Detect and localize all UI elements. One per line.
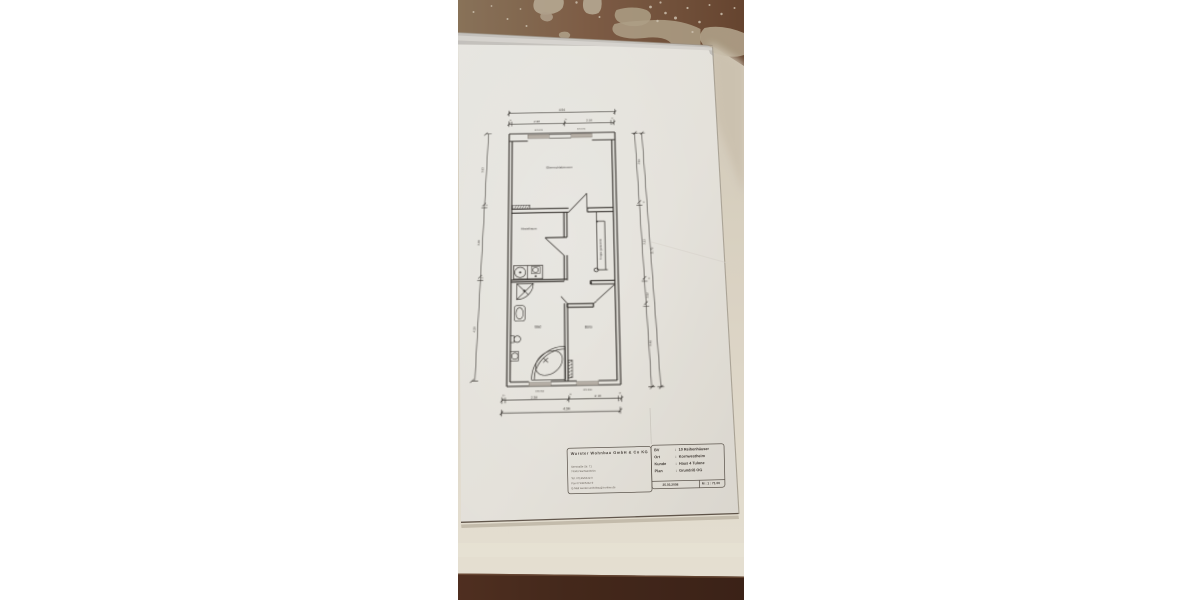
svg-text:Seestraße Str. 71: Seestraße Str. 71 <box>571 464 593 469</box>
svg-text:2.38: 2.38 <box>531 395 538 400</box>
svg-text:15: 15 <box>564 119 566 121</box>
svg-text:11.73: 11.73 <box>650 247 655 254</box>
svg-text:Tel. 07136/6442-0: Tel. 07136/6442-0 <box>571 476 593 481</box>
svg-text:2.10: 2.10 <box>594 393 601 398</box>
svg-text:Büro: Büro <box>585 325 593 330</box>
svg-text:Grundriß OG: Grundriß OG <box>679 468 702 473</box>
svg-text:3.91: 3.91 <box>637 158 642 164</box>
svg-text:3.46: 3.46 <box>648 340 653 347</box>
svg-text:876 800: 876 800 <box>535 391 545 393</box>
svg-text:2.38: 2.38 <box>534 119 540 123</box>
svg-text:3.28: 3.28 <box>476 240 481 246</box>
svg-text:2.10: 2.10 <box>586 118 593 122</box>
svg-text:876 800: 876 800 <box>583 390 593 392</box>
svg-text:1.32: 1.32 <box>645 292 650 298</box>
svg-text:10 Reihenhäuser: 10 Reihenhäuser <box>679 447 710 452</box>
svg-text:15: 15 <box>509 120 511 122</box>
svg-text:15: 15 <box>482 277 484 279</box>
svg-text:Plan: Plan <box>655 469 664 473</box>
svg-text:876 876: 876 876 <box>577 129 586 131</box>
svg-text:Kornwestheim: Kornwestheim <box>679 454 706 459</box>
svg-text:Ort: Ort <box>654 455 661 459</box>
svg-text:Kunde: Kunde <box>654 462 666 466</box>
svg-text:15: 15 <box>619 392 621 394</box>
svg-text:3.93: 3.93 <box>480 167 485 173</box>
svg-text:4.94: 4.94 <box>559 108 566 112</box>
svg-text:Fax 07136/6442-9: Fax 07136/6442-9 <box>571 481 593 486</box>
svg-text:15: 15 <box>643 201 645 203</box>
svg-text:15: 15 <box>569 394 571 396</box>
svg-text::: : <box>676 469 677 473</box>
svg-text:3.33: 3.33 <box>642 239 647 245</box>
svg-text:Haus 4 Tulone: Haus 4 Tulone <box>679 461 705 466</box>
svg-text:15: 15 <box>649 277 651 279</box>
svg-text:Treppe gestemmt: Treppe gestemmt <box>599 238 603 259</box>
svg-text:4.94: 4.94 <box>563 406 570 411</box>
svg-text::: : <box>675 448 676 452</box>
svg-text::: : <box>675 462 676 466</box>
svg-text:BV: BV <box>654 448 660 452</box>
svg-text:15: 15 <box>611 118 613 120</box>
svg-text::: : <box>675 455 676 459</box>
svg-text:15: 15 <box>486 204 488 206</box>
svg-text:876 876: 876 876 <box>535 130 544 132</box>
svg-text:4.38: 4.38 <box>472 326 477 332</box>
svg-text:Abstellraum: Abstellraum <box>521 226 538 230</box>
svg-text:74343 Sachsenheim: 74343 Sachsenheim <box>571 469 596 474</box>
svg-text:25.03.2008: 25.03.2008 <box>662 483 678 487</box>
svg-text:Bad: Bad <box>535 325 542 330</box>
svg-text:Elternschlafzimmer: Elternschlafzimmer <box>546 165 572 169</box>
svg-text:15: 15 <box>502 395 504 397</box>
svg-text:M : 1 : 71.00: M : 1 : 71.00 <box>702 481 720 485</box>
